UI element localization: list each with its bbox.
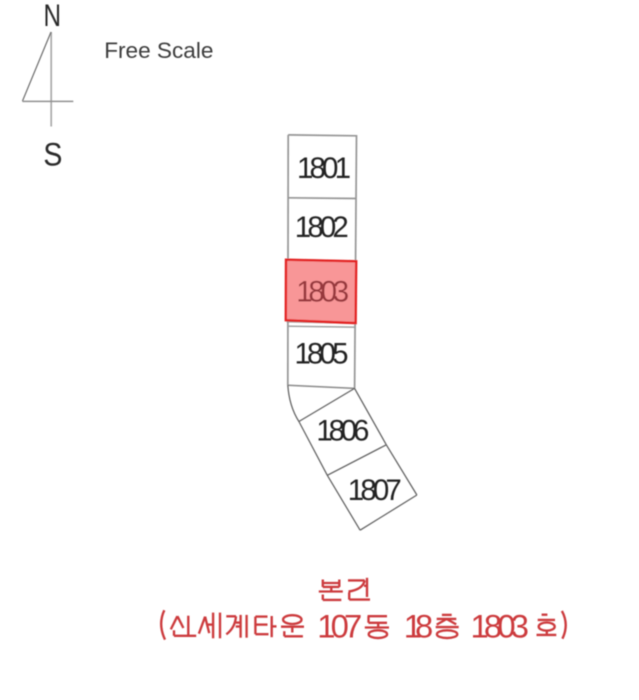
svg-text:N: N	[44, 0, 62, 33]
svg-text:1802: 1802	[295, 211, 349, 244]
svg-text:18: 18	[404, 608, 434, 645]
svg-text:1803: 1803	[296, 276, 349, 309]
svg-text:Free Scale: Free Scale	[104, 38, 213, 63]
svg-text:1806: 1806	[316, 415, 369, 448]
svg-text:1801: 1801	[297, 152, 351, 185]
svg-text:S: S	[43, 136, 62, 172]
svg-text:1803: 1803	[471, 608, 530, 645]
svg-text:107: 107	[317, 608, 362, 645]
svg-text:1805: 1805	[295, 338, 349, 371]
svg-text:1807: 1807	[348, 474, 402, 507]
